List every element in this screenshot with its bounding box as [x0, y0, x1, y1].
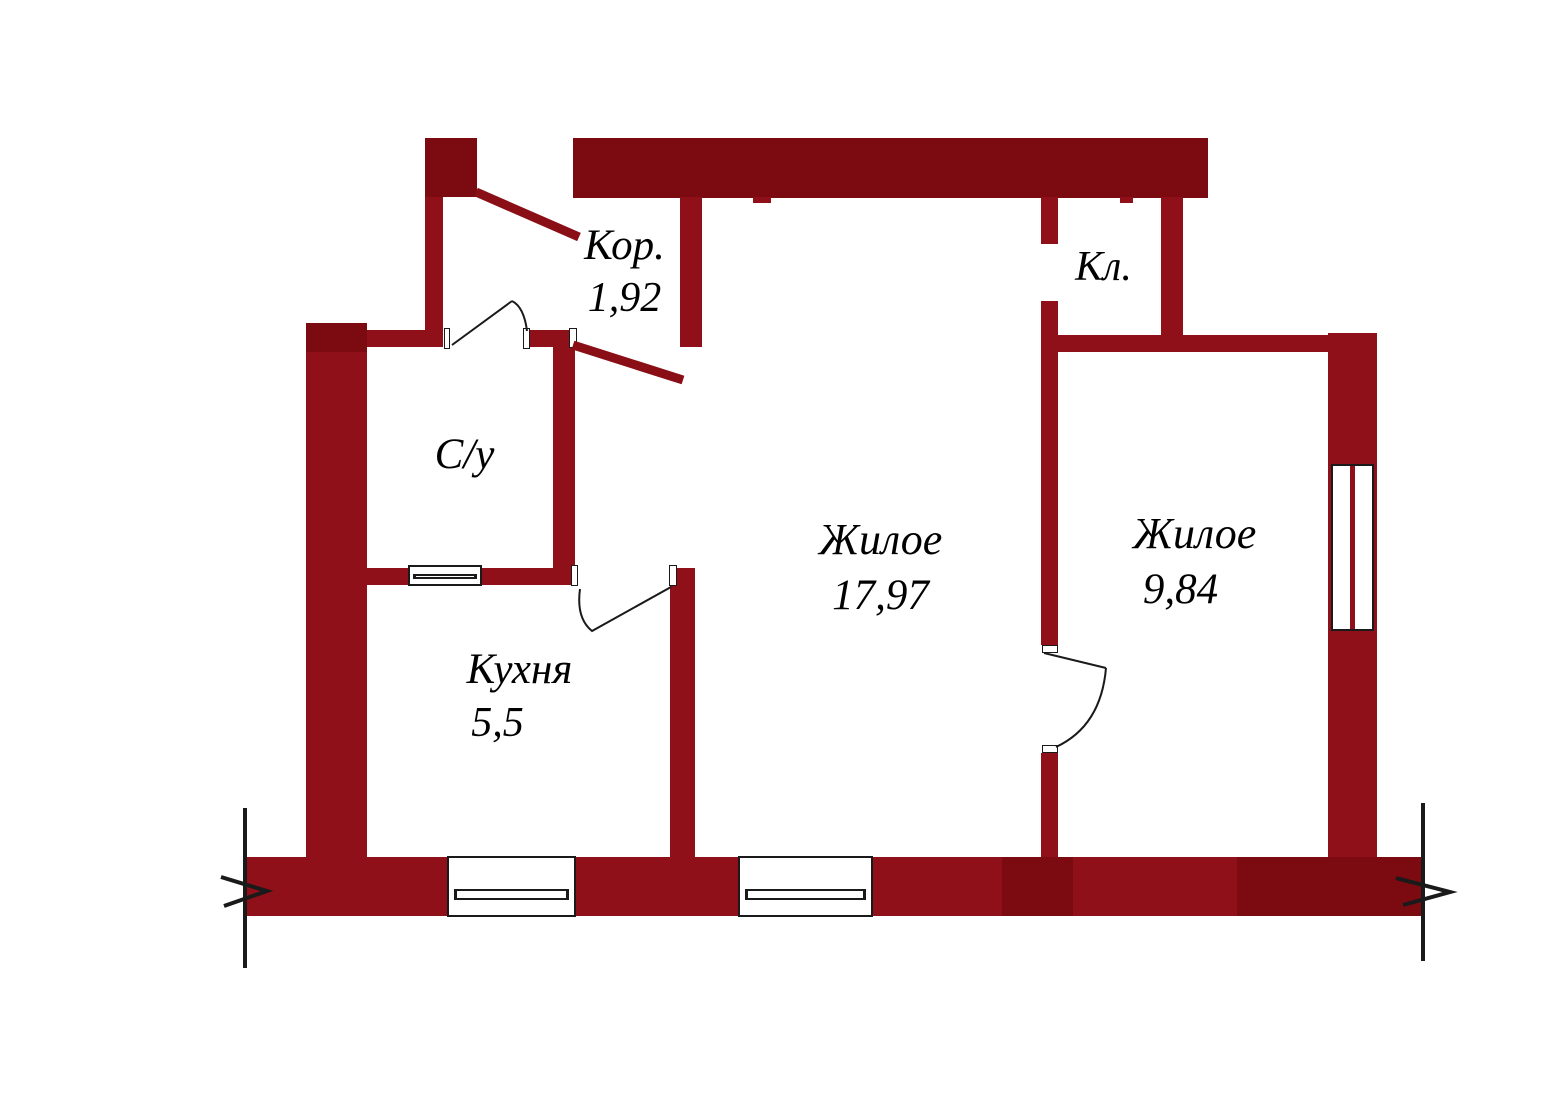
entrance-door-leaf-upper: [476, 192, 579, 237]
kitchen-door-swing: [579, 587, 671, 631]
bathroom-door-swing: [452, 301, 527, 345]
floor-plan: Кор. 1,92 С/у Кухня 5,5 Жилое 17,97 Кл. …: [0, 0, 1564, 1093]
room2-door-swing: [1044, 653, 1106, 747]
linework-overlay: [0, 0, 1564, 1093]
entrance-door-leaf-lower: [573, 345, 683, 380]
